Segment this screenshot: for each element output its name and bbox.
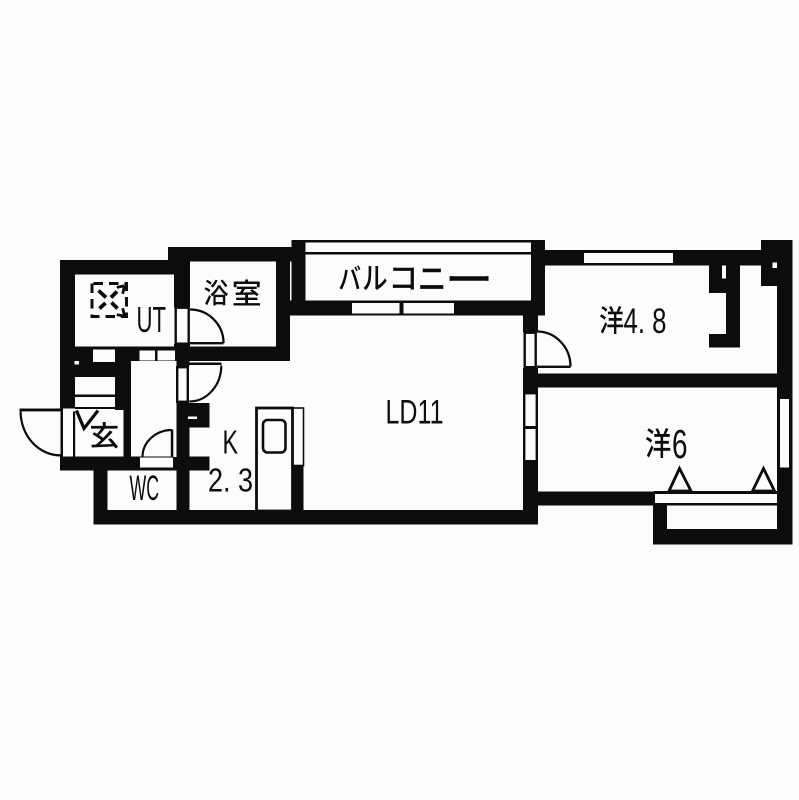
svg-text:K: K [223, 424, 239, 461]
svg-text:2. 3: 2. 3 [208, 462, 253, 499]
svg-text:6: 6 [672, 421, 688, 467]
svg-text:UT: UT [137, 300, 167, 340]
svg-text:LD11: LD11 [386, 394, 444, 432]
svg-text:4. 8: 4. 8 [624, 301, 667, 341]
svg-text:WC: WC [130, 469, 160, 508]
